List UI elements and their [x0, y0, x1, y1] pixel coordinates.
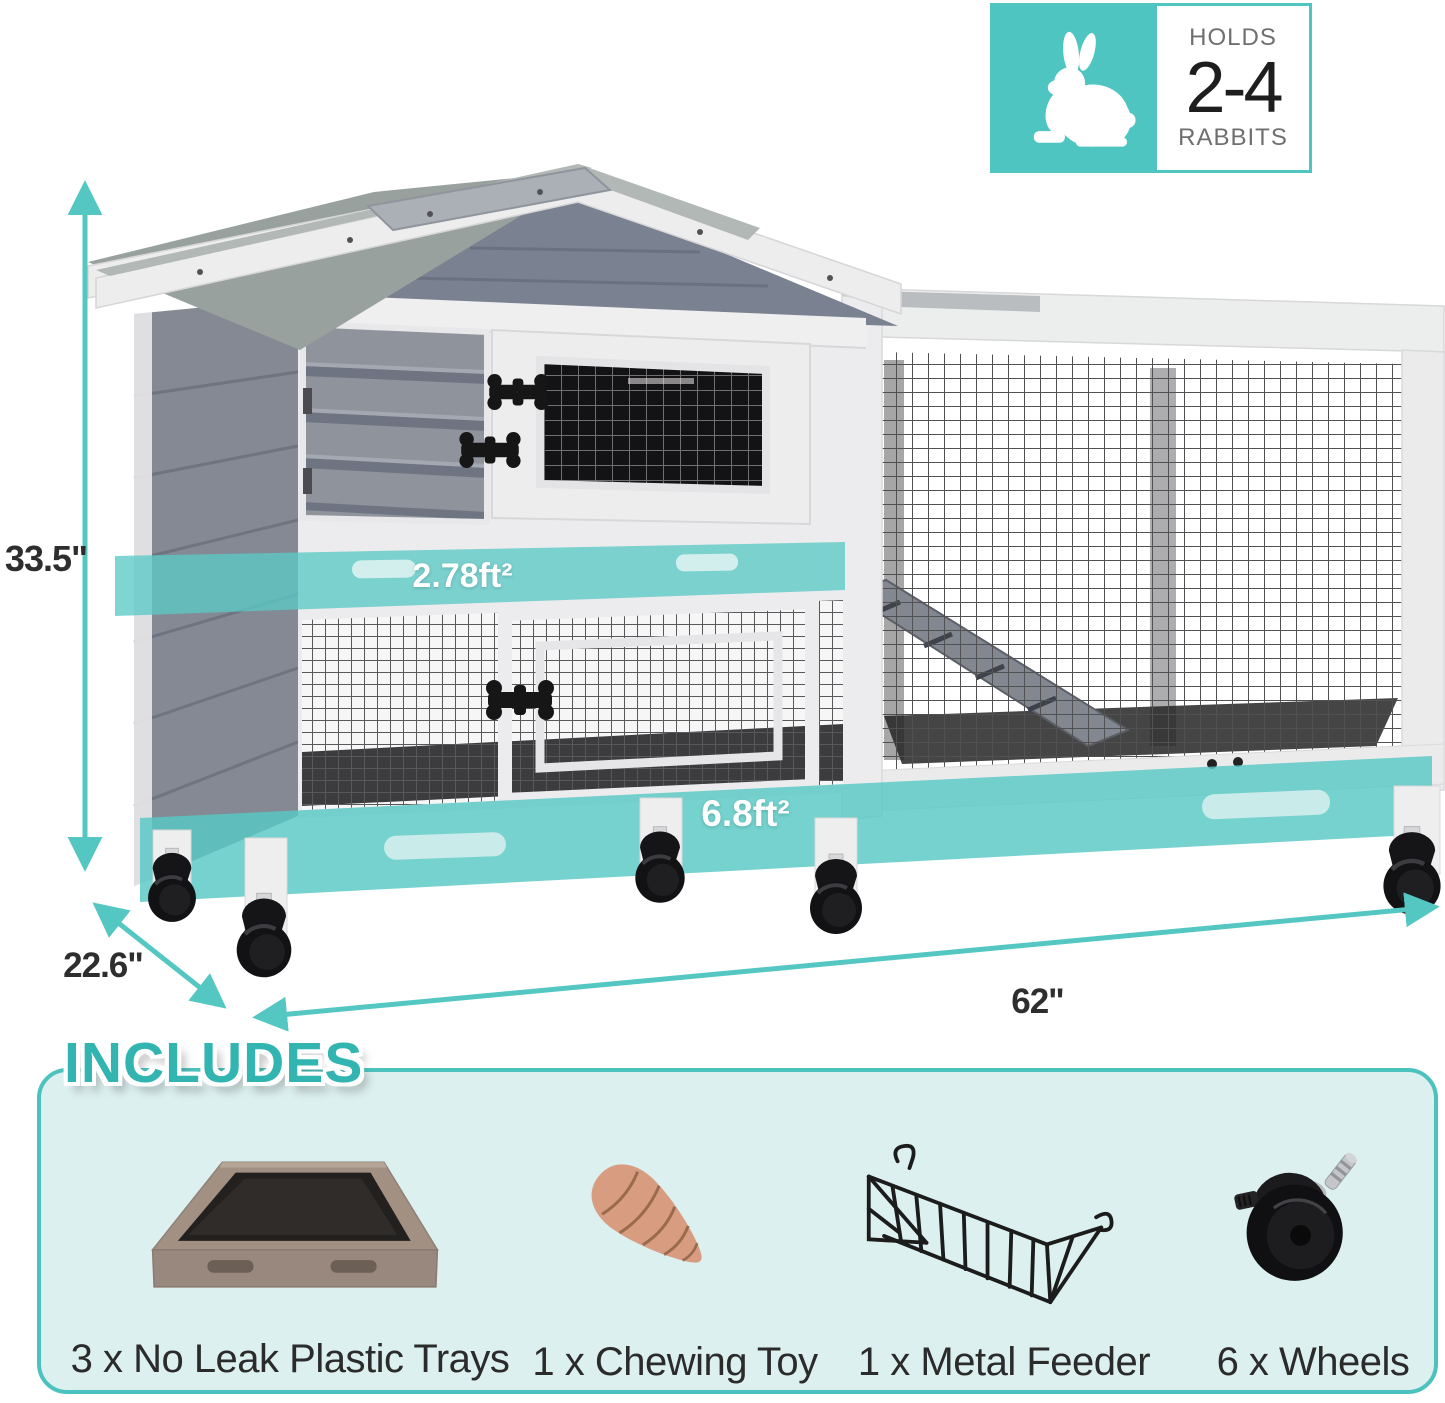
includes-title: INCLUDES	[64, 1030, 363, 1096]
carrot-chew-toy-icon	[562, 1126, 742, 1314]
feeder-item-label: 1 x Metal Feeder	[854, 1340, 1154, 1385]
metal-feeder-icon	[845, 1132, 1125, 1328]
lower-level	[302, 600, 843, 810]
height-dimension-label: 33.5"	[0, 538, 92, 580]
badge-capacity-value: 2-4	[1185, 52, 1280, 124]
caster-wheel-icon	[1218, 1148, 1374, 1298]
upper-mesh-door	[492, 330, 810, 524]
depth-dimension-label: 22.6"	[28, 946, 178, 986]
badge-animal-label: RABBITS	[1178, 126, 1288, 150]
chew-toy-item-label: 1 x Chewing Toy	[525, 1340, 825, 1385]
run-section	[842, 288, 1444, 820]
trays-item-label: 3 x No Leak Plastic Trays	[40, 1337, 540, 1382]
badge-holds-label: HOLDS	[1189, 26, 1277, 50]
wheels-item-label: 6 x Wheels	[1163, 1340, 1445, 1385]
badge-text: HOLDS 2-4 RABBITS	[1157, 6, 1309, 170]
length-dimension-label: 62"	[960, 982, 1115, 1022]
lower-area-label: 6.8ft²	[668, 793, 823, 835]
rabbit-hutch-infographic: 33.5" 22.6" 62" 2.78ft² 6.8ft²	[0, 0, 1445, 1403]
louver-door	[303, 324, 487, 522]
capacity-badge: HOLDS 2-4 RABBITS	[990, 3, 1312, 173]
litter-tray-icon	[105, 1140, 485, 1318]
badge-icon-box	[993, 6, 1157, 170]
rabbit-icon	[1009, 12, 1141, 164]
upper-area-label: 2.78ft²	[385, 557, 540, 596]
